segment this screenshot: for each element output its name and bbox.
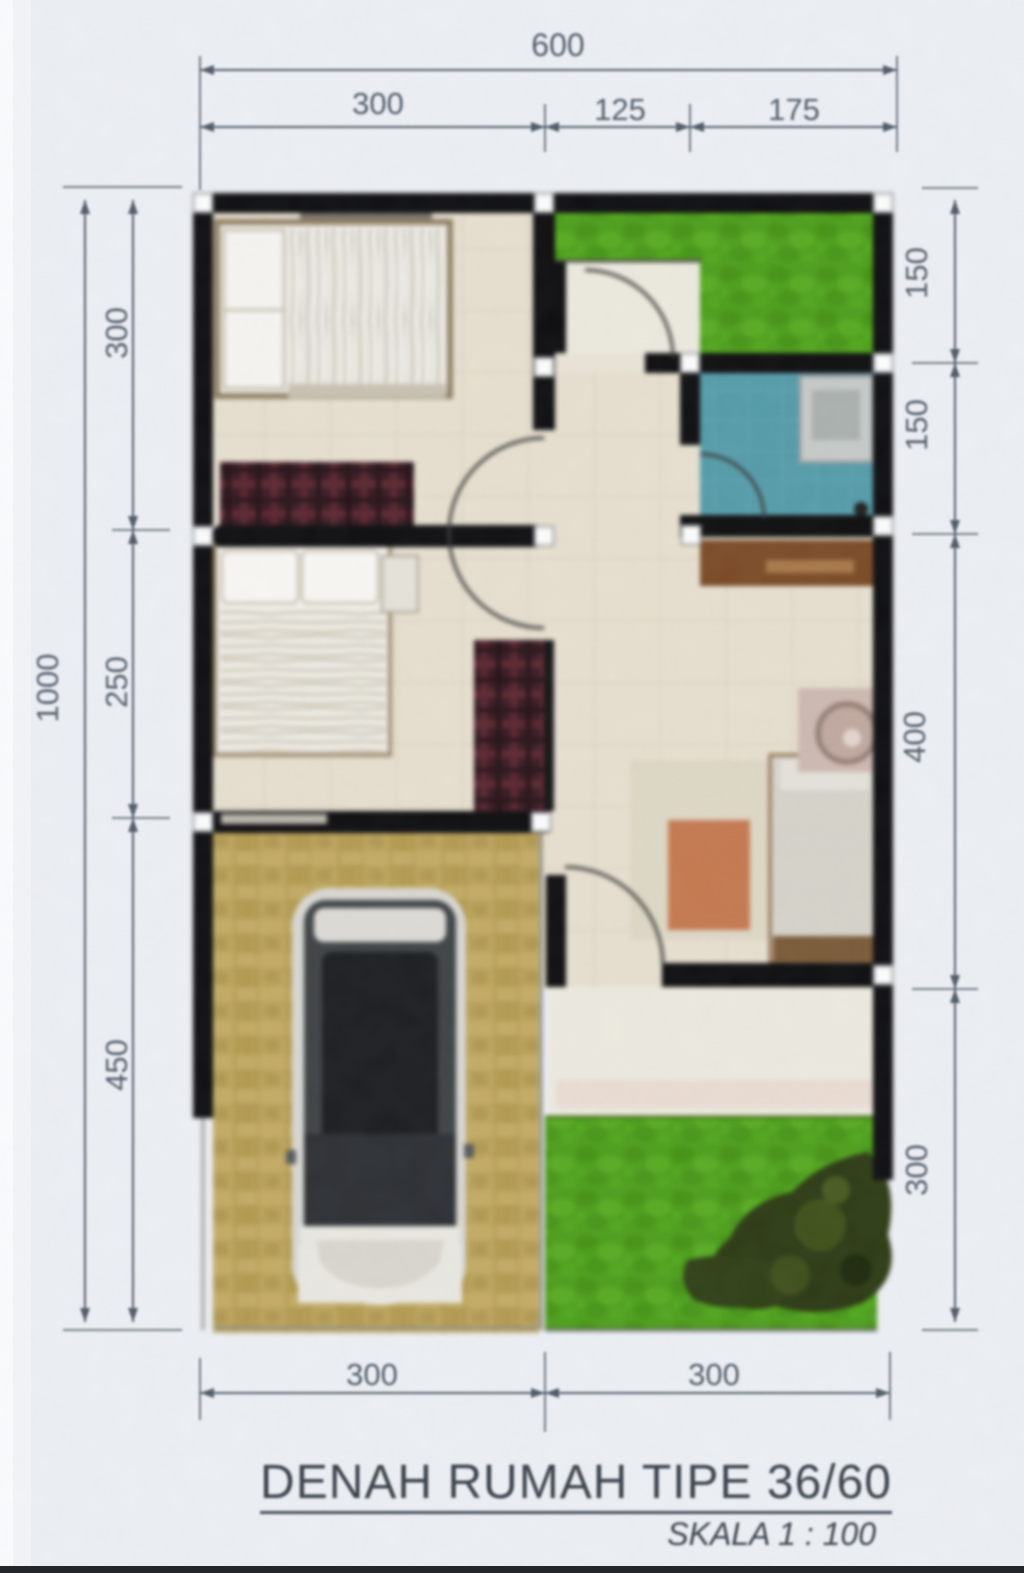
svg-text:300: 300 bbox=[99, 307, 134, 359]
svg-text:300: 300 bbox=[352, 86, 404, 121]
svg-text:300: 300 bbox=[899, 1144, 934, 1196]
svg-text:450: 450 bbox=[99, 1039, 134, 1091]
svg-text:250: 250 bbox=[99, 656, 134, 708]
svg-text:150: 150 bbox=[899, 247, 934, 299]
svg-text:600: 600 bbox=[531, 27, 584, 63]
svg-text:175: 175 bbox=[768, 92, 820, 127]
svg-text:300: 300 bbox=[688, 1357, 740, 1392]
svg-text:125: 125 bbox=[594, 92, 646, 127]
svg-text:1000: 1000 bbox=[30, 654, 65, 723]
svg-text:400: 400 bbox=[897, 711, 932, 763]
svg-text:300: 300 bbox=[346, 1357, 398, 1392]
svg-text:150: 150 bbox=[899, 399, 934, 451]
